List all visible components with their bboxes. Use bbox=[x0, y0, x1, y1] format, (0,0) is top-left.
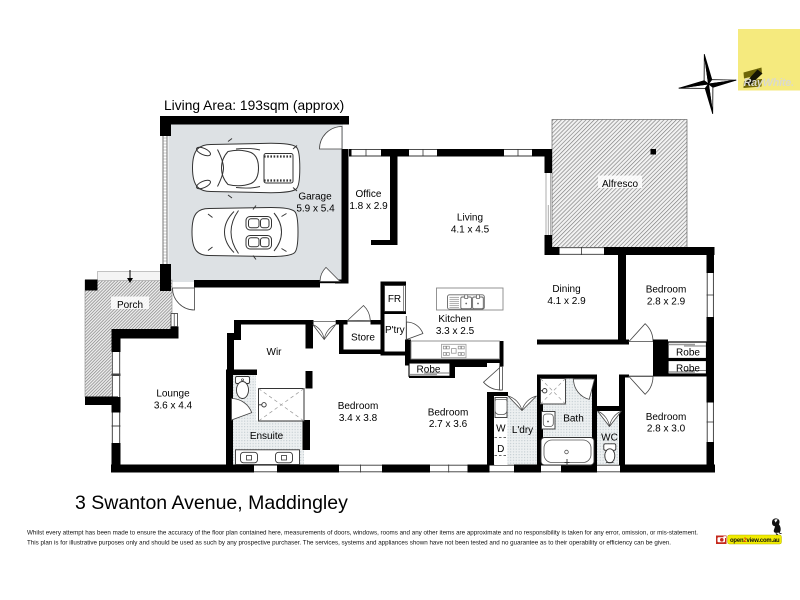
svg-text:Office: Office bbox=[356, 189, 382, 200]
svg-text:Robe: Robe bbox=[417, 365, 441, 376]
svg-text:Bath: Bath bbox=[563, 414, 584, 425]
svg-text:Living: Living bbox=[457, 213, 483, 224]
svg-text:Lounge: Lounge bbox=[156, 389, 190, 400]
svg-text:Bedroom: Bedroom bbox=[428, 408, 469, 419]
svg-text:Wir: Wir bbox=[267, 347, 283, 358]
svg-text:WC: WC bbox=[601, 433, 618, 444]
svg-text:1.8 x 2.9: 1.8 x 2.9 bbox=[349, 201, 388, 212]
svg-text:RayWhite.: RayWhite. bbox=[744, 77, 795, 89]
svg-text:W: W bbox=[496, 424, 506, 435]
svg-text:Kitchen: Kitchen bbox=[438, 314, 471, 325]
svg-text:Whilst every attempt has been: Whilst every attempt has been made to en… bbox=[27, 530, 698, 537]
svg-text:This plan is for illustrative: This plan is for illustrative purposes o… bbox=[27, 540, 671, 547]
svg-text:3.4 x 3.8: 3.4 x 3.8 bbox=[339, 413, 378, 424]
svg-text:Robe: Robe bbox=[676, 348, 700, 359]
svg-text:3 Swanton Avenue, Maddingley: 3 Swanton Avenue, Maddingley bbox=[75, 492, 348, 514]
svg-text:2.8 x 2.9: 2.8 x 2.9 bbox=[647, 297, 686, 308]
svg-text:Bedroom: Bedroom bbox=[338, 401, 379, 412]
svg-text:3.6 x 4.4: 3.6 x 4.4 bbox=[154, 401, 193, 412]
svg-text:Bedroom: Bedroom bbox=[646, 412, 687, 423]
svg-text:Store: Store bbox=[351, 333, 375, 344]
svg-text:2.7 x 3.6: 2.7 x 3.6 bbox=[429, 419, 468, 430]
svg-text:P'try: P'try bbox=[385, 325, 405, 336]
svg-text:Living Area: 193sqm (approx): Living Area: 193sqm (approx) bbox=[164, 98, 344, 113]
svg-text:5.9 x 5.4: 5.9 x 5.4 bbox=[296, 204, 335, 215]
svg-text:Ensuite: Ensuite bbox=[250, 431, 284, 442]
svg-text:Alfresco: Alfresco bbox=[602, 179, 639, 190]
svg-text:L'dry: L'dry bbox=[512, 425, 533, 436]
svg-text:4.1 x 2.9: 4.1 x 2.9 bbox=[547, 296, 586, 307]
svg-text:3.3 x 2.5: 3.3 x 2.5 bbox=[436, 326, 475, 337]
svg-text:Porch: Porch bbox=[117, 300, 143, 311]
svg-text:open2view.com.au: open2view.com.au bbox=[730, 537, 780, 544]
svg-text:Dining: Dining bbox=[552, 284, 580, 295]
svg-text:FR: FR bbox=[388, 294, 401, 305]
svg-text:4.1 x 4.5: 4.1 x 4.5 bbox=[451, 225, 490, 236]
svg-text:2.8 x 3.0: 2.8 x 3.0 bbox=[647, 424, 686, 435]
svg-text:Garage: Garage bbox=[298, 192, 332, 203]
svg-text:D: D bbox=[497, 444, 504, 455]
svg-text:Bedroom: Bedroom bbox=[646, 285, 687, 296]
svg-text:Robe: Robe bbox=[676, 364, 700, 375]
